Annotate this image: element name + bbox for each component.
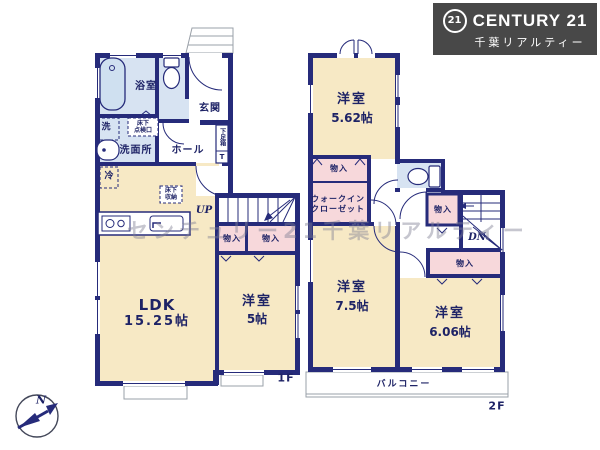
label-hall: ホール: [172, 145, 205, 157]
label-storage-line2: 収納: [165, 194, 177, 201]
label-ldk-name: LDK: [139, 296, 176, 314]
label-bedroom2c-name: 洋室: [435, 306, 465, 322]
terrace-ldk: [124, 386, 187, 399]
terrace-bedroom: [221, 375, 263, 386]
label-wic-line2: クローゼット: [311, 204, 365, 214]
logo-row: 21 CENTURY 21: [443, 9, 588, 33]
label-compass-north: N: [36, 393, 46, 406]
label-shoebox-t: T: [220, 153, 225, 161]
label-bathroom: 浴室: [135, 81, 157, 93]
floorplan-canvas: 浴室 洗 床下 点検口 洗面所 玄関 下足箱 T ホール 冷 床下 収納 UP …: [0, 0, 600, 450]
label-bedroom1f-name: 洋室: [242, 294, 272, 310]
logo-subtitle: 千葉リアルティー: [474, 34, 585, 50]
label-shoebox: 下足箱: [218, 128, 225, 146]
label-balcony: バルコニー: [377, 380, 432, 391]
label-bedroom2b-name: 洋室: [337, 280, 367, 296]
label-floor2: 2F: [488, 399, 505, 412]
label-underfloor-storage: 床下 収納: [165, 187, 177, 201]
label-wic-line1: ウォークイン: [311, 194, 365, 204]
c21-circle-icon: 21: [443, 9, 467, 33]
label-walkin-closet: ウォークイン クローゼット: [311, 194, 365, 213]
vanity-sink-icon: [97, 140, 119, 160]
label-inspection-hatch: 床下 点検口: [134, 120, 152, 134]
bathtub-icon: [100, 58, 125, 110]
label-floor1: 1F: [277, 371, 294, 384]
label-fridge: 冷: [104, 172, 113, 183]
label-ldk-size: 15.25帖: [124, 314, 190, 330]
label-entrance: 玄関: [199, 103, 221, 115]
label-closet-2f-b: 物入: [434, 205, 452, 215]
label-closet-2f-a: 物入: [330, 164, 348, 174]
logo-brand-text: CENTURY 21: [473, 11, 588, 31]
label-bedroom2b-size: 7.5帖: [335, 299, 368, 313]
entrance-porch: [186, 28, 233, 53]
label-bedroom2a-size: 5.62帖: [331, 111, 373, 125]
label-closet-2f-c: 物入: [456, 259, 474, 269]
label-washer: 洗: [101, 123, 110, 134]
label-bedroom2c-size: 6.06帖: [429, 325, 471, 339]
label-washroom: 洗面所: [120, 145, 153, 157]
label-inspection-line2: 点検口: [134, 127, 152, 134]
century21-logo: 21 CENTURY 21 千葉リアルティー: [433, 3, 597, 55]
label-bedroom2a-name: 洋室: [337, 92, 367, 108]
toilet-1f-icon: [164, 58, 180, 89]
watermark-text: センチュリー21千葉リアルティー: [127, 215, 529, 245]
label-bedroom1f-size: 5帖: [247, 312, 267, 326]
